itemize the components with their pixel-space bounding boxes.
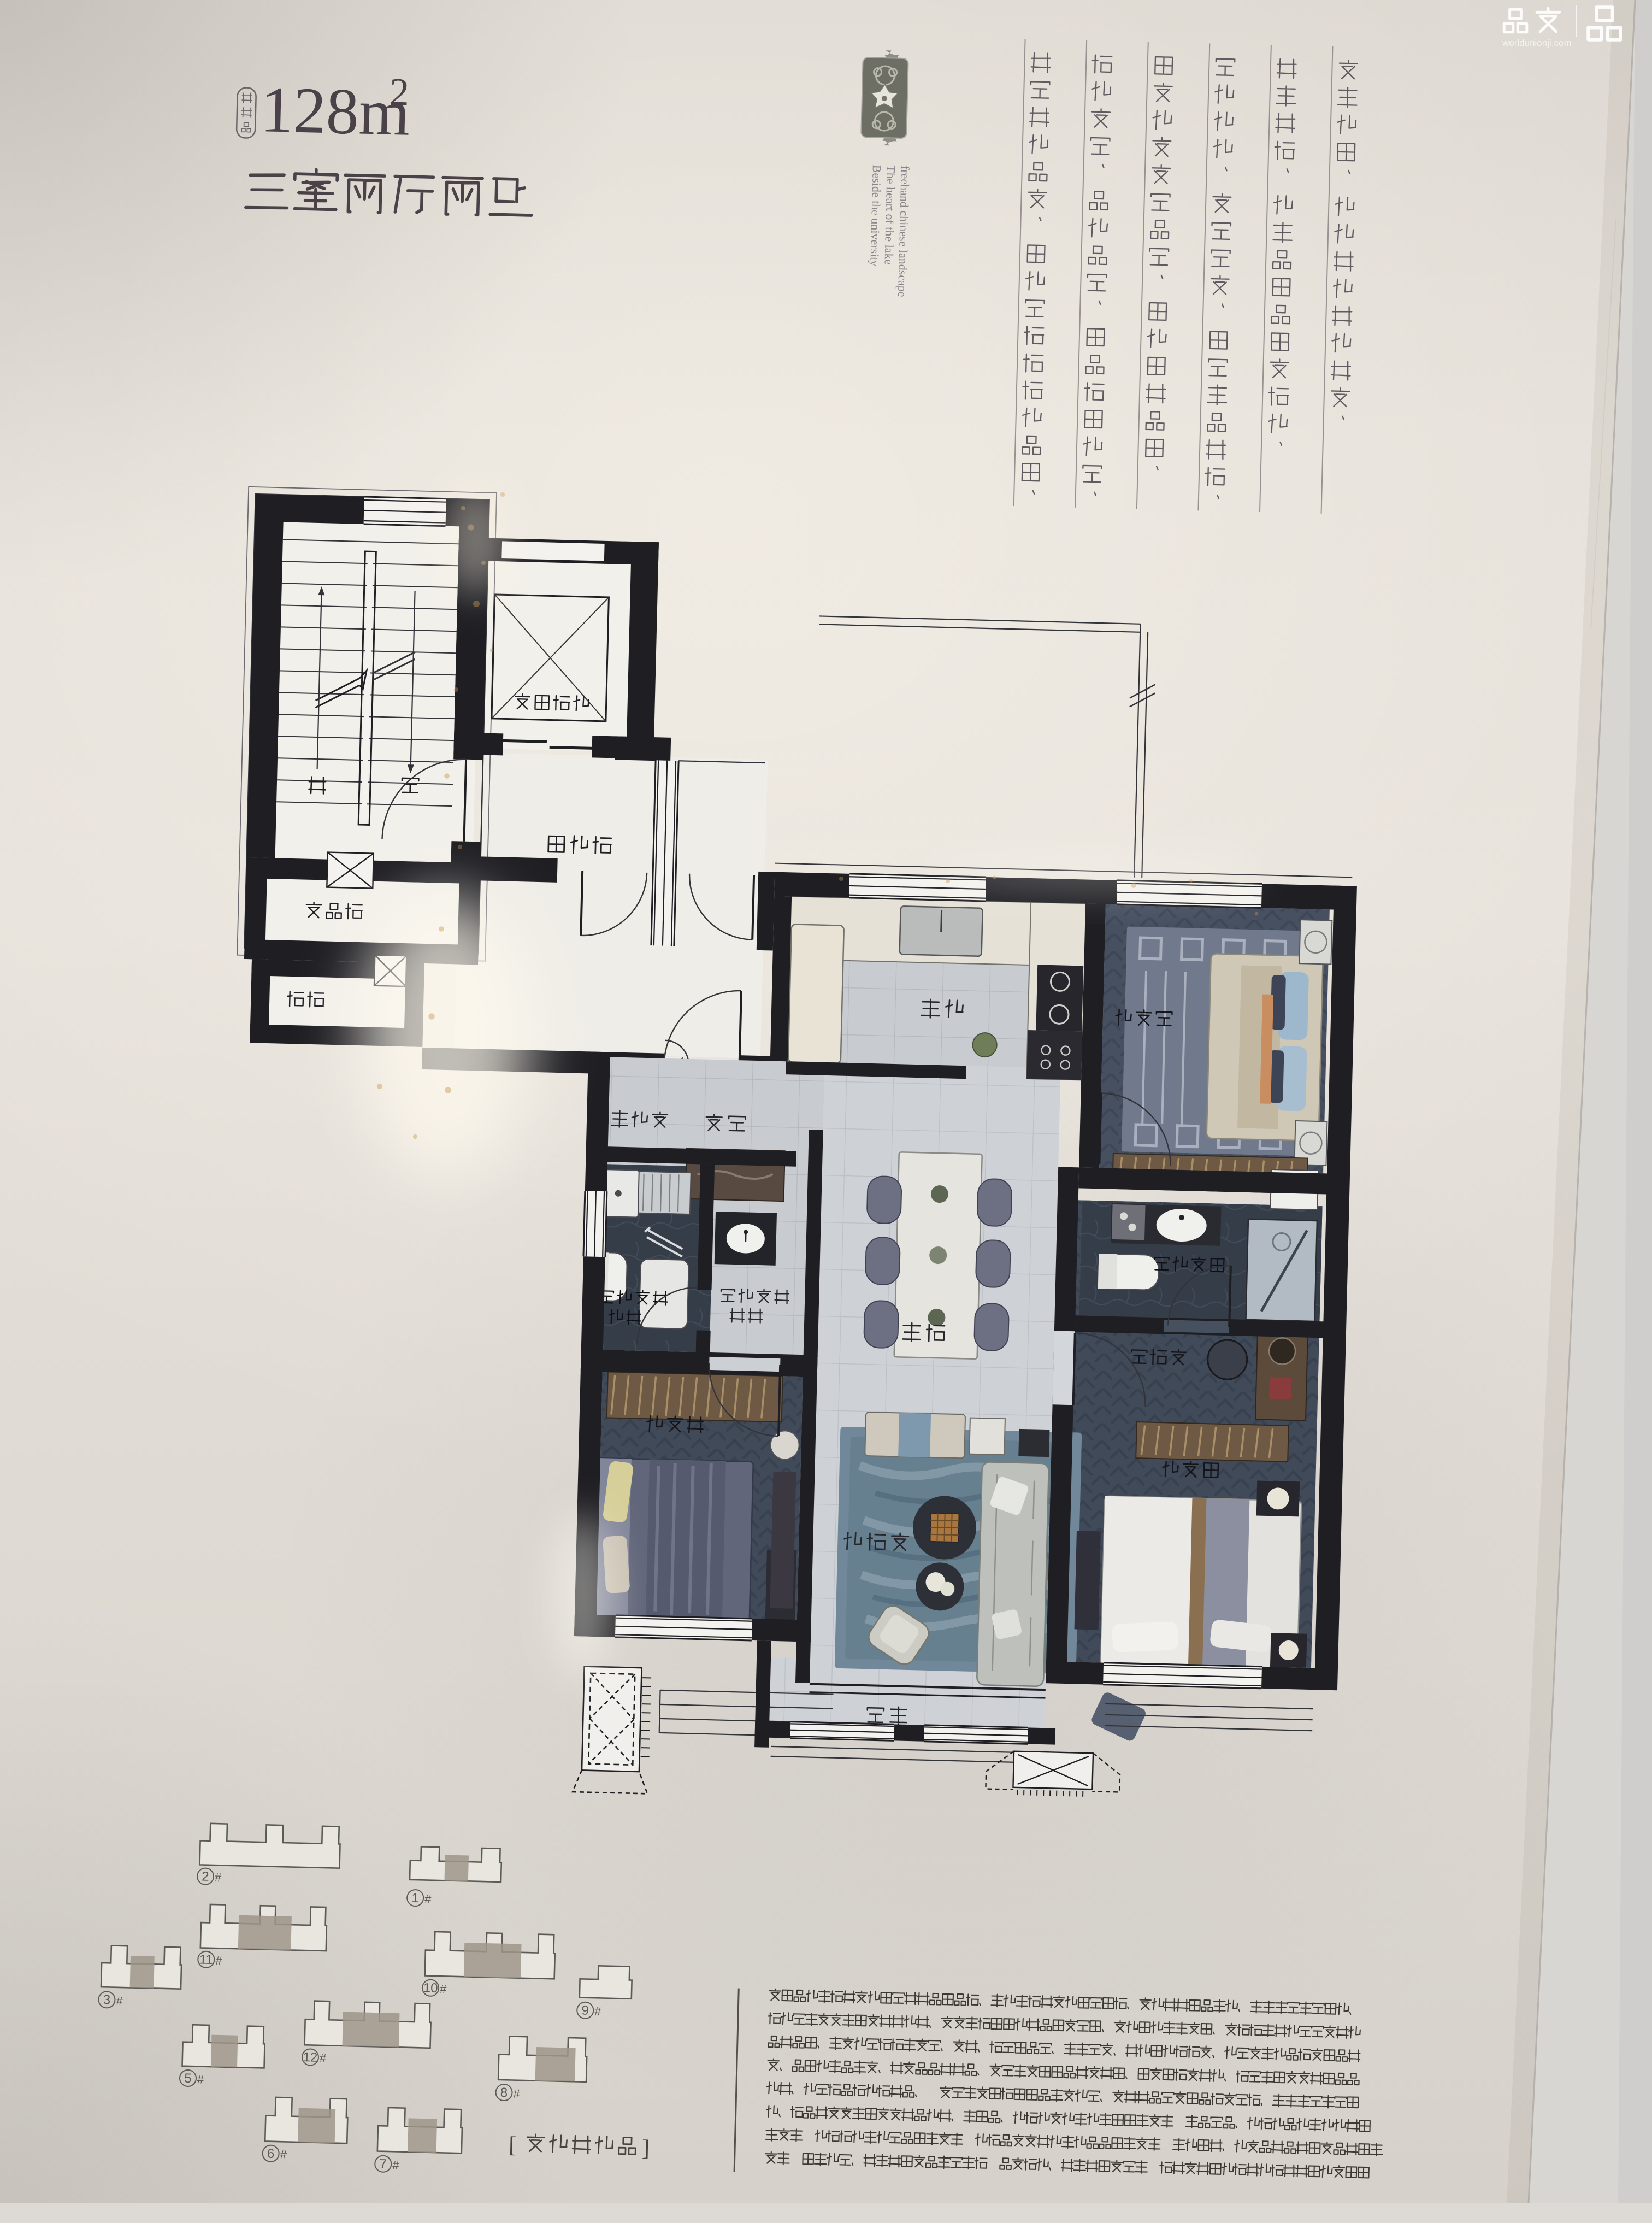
svg-text:5: 5 <box>184 2071 192 2086</box>
svg-text:]: ] <box>642 2136 650 2161</box>
svg-text:#: # <box>320 2051 327 2065</box>
svg-text:#: # <box>215 1954 223 1967</box>
svg-text:2: 2 <box>202 1869 209 1884</box>
svg-text:#: # <box>513 2087 521 2101</box>
svg-text:10: 10 <box>423 1980 438 1996</box>
svg-text:2: 2 <box>389 70 410 114</box>
svg-text:12: 12 <box>303 2050 317 2065</box>
svg-text:#: # <box>116 1994 123 2008</box>
svg-text:11: 11 <box>199 1952 214 1967</box>
svg-text:#: # <box>392 2158 400 2172</box>
svg-text:#: # <box>594 2004 602 2018</box>
svg-text:1: 1 <box>411 1891 419 1906</box>
svg-text:[: [ <box>509 2132 517 2157</box>
svg-text:#: # <box>440 1982 447 1996</box>
svg-text:9: 9 <box>581 2003 589 2018</box>
svg-text:#: # <box>280 2148 287 2161</box>
svg-text:7: 7 <box>379 2157 387 2172</box>
svg-text:Beside the university: Beside the university <box>868 164 884 266</box>
svg-text:The heart of the lake: The heart of the lake <box>882 165 898 265</box>
svg-text:#: # <box>197 2072 205 2086</box>
svg-text:6: 6 <box>267 2146 275 2161</box>
svg-text:8: 8 <box>500 2085 508 2100</box>
svg-text:#: # <box>424 1892 432 1906</box>
svg-text:3: 3 <box>103 1992 110 2007</box>
svg-text:128m: 128m <box>259 73 411 149</box>
svg-text:#: # <box>215 1871 222 1884</box>
